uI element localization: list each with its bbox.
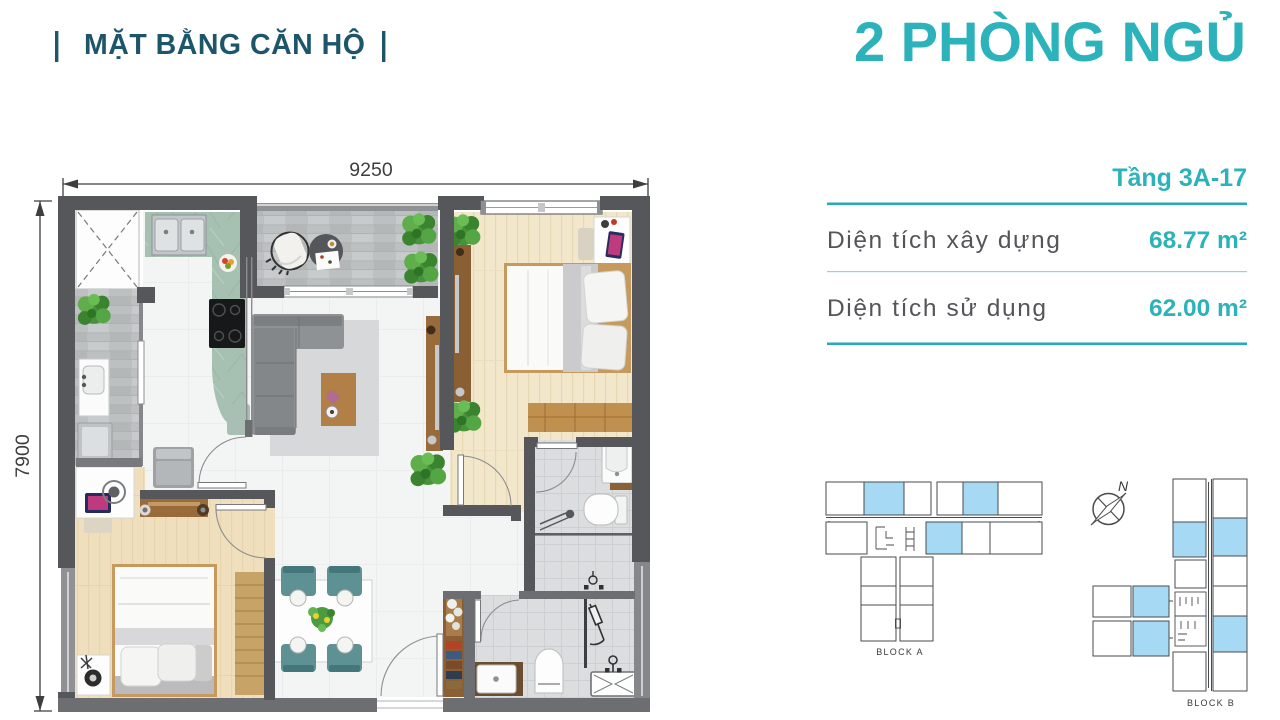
svg-text:Diện tích xây dựng: Diện tích xây dựng [827,227,1062,254]
svg-text:Tầng 3A-17: Tầng 3A-17 [1112,164,1247,192]
svg-text:2 PHÒNG NGỦ: 2 PHÒNG NGỦ [854,10,1246,73]
svg-text:N: N [1118,478,1129,494]
svg-text:9250: 9250 [349,159,393,181]
svg-text:62.00 m²: 62.00 m² [1149,295,1247,322]
svg-text:MẶT BẰNG CĂN HỘ: MẶT BẰNG CĂN HỘ [84,28,365,61]
svg-text:Diện tích sử dụng: Diện tích sử dụng [827,295,1048,322]
svg-text:7900: 7900 [12,434,34,478]
svg-text:BLOCK A: BLOCK A [876,647,924,657]
svg-text:68.77 m²: 68.77 m² [1149,227,1247,254]
svg-text:BLOCK B: BLOCK B [1187,698,1235,708]
